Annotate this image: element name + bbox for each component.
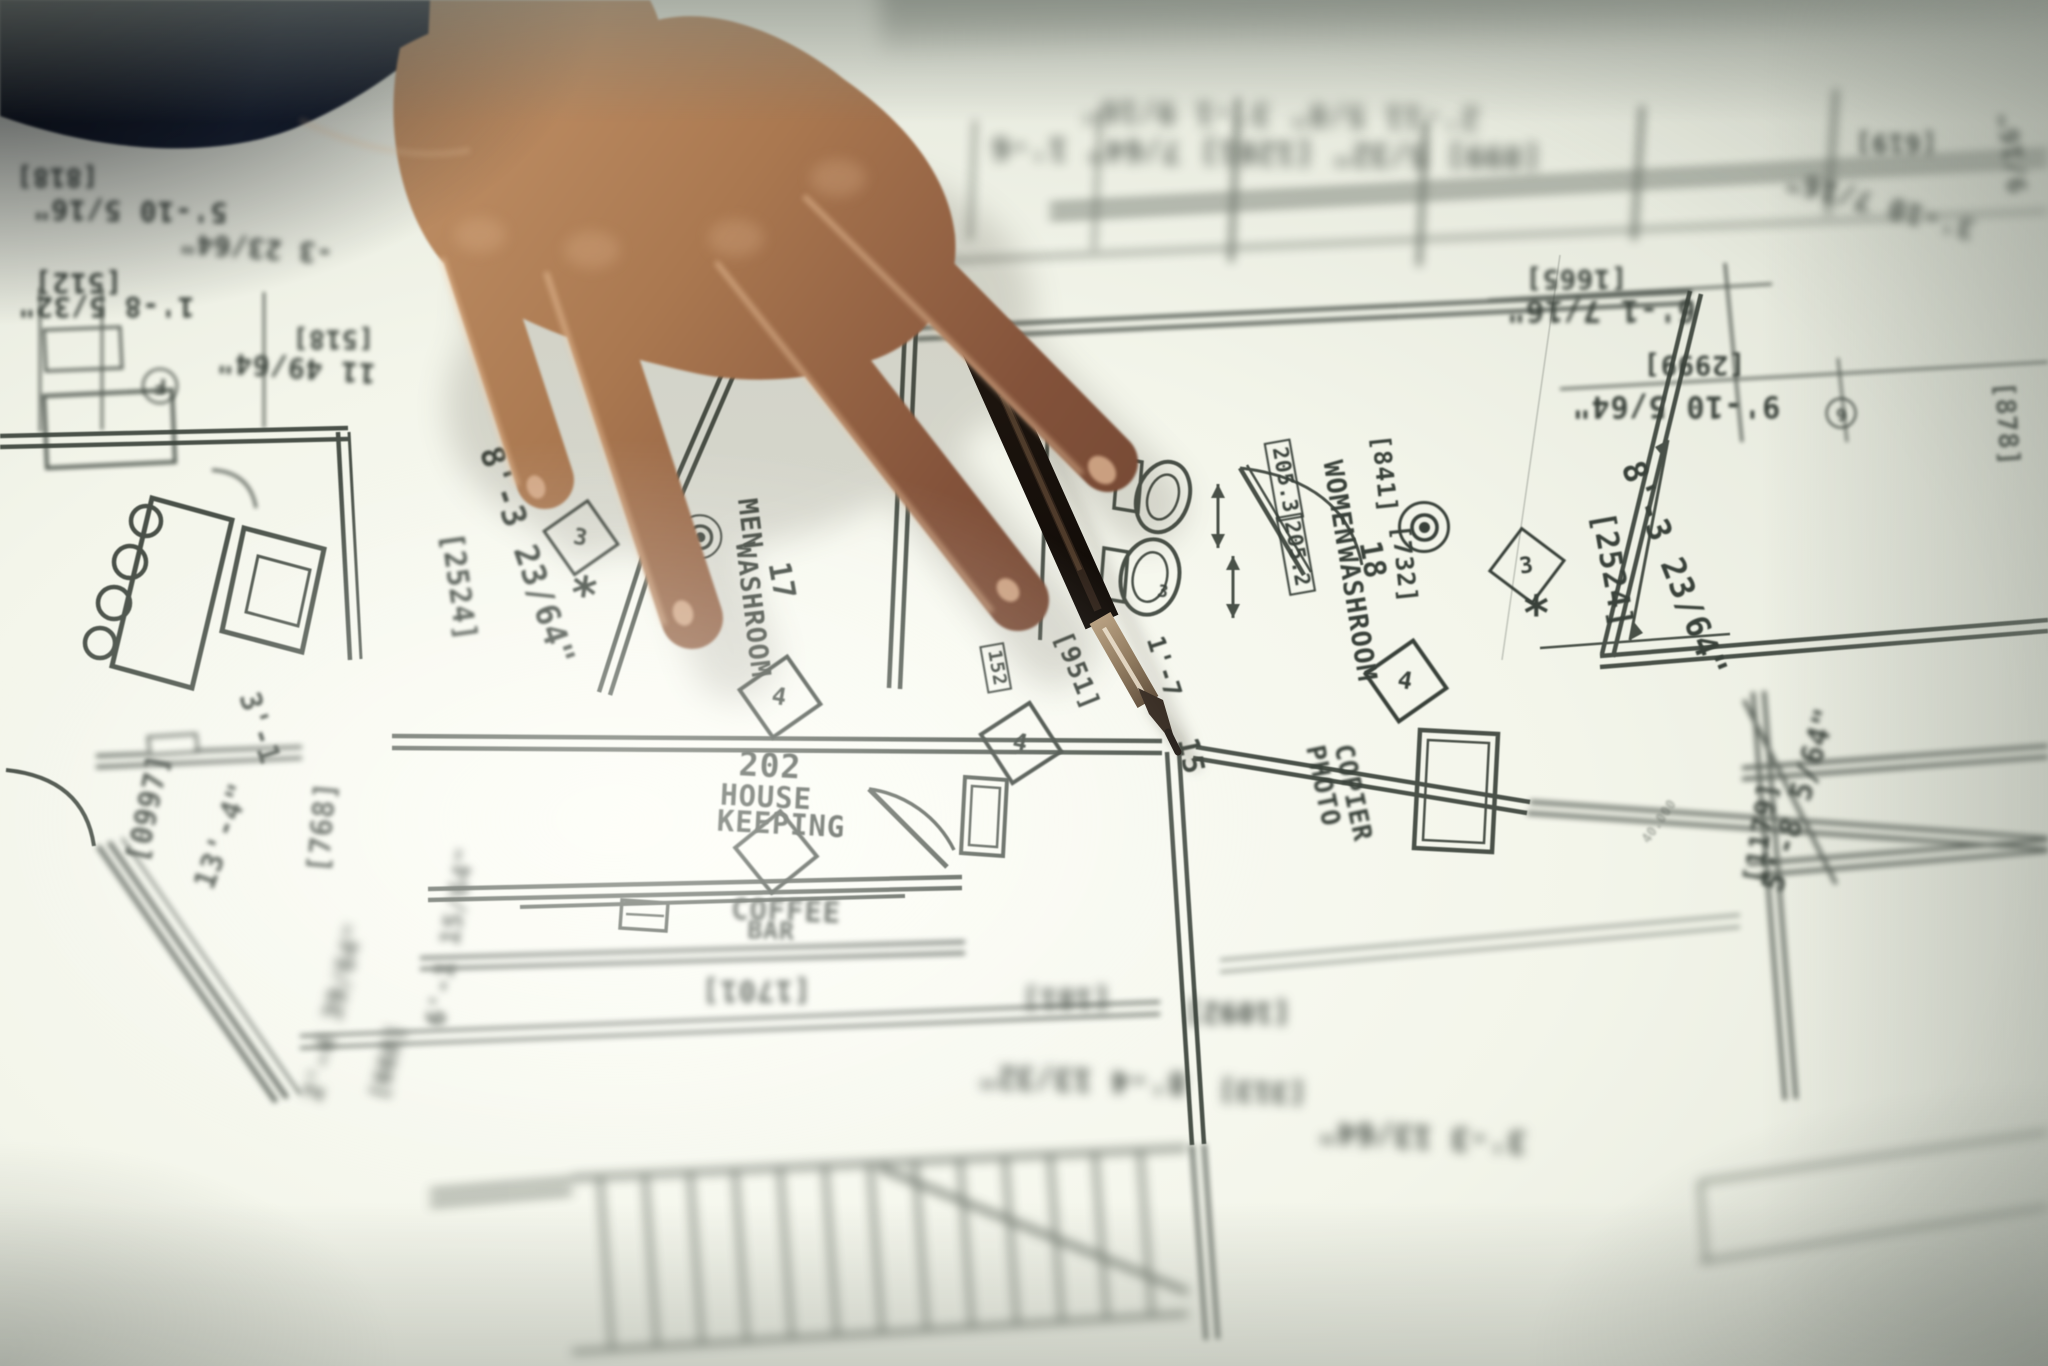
vignette-bottom-left xyxy=(0,0,2048,1366)
photo-blueprint-scene: [818]5'-10 5/16"-3 23/64"[512]1'-8 5/32"… xyxy=(0,0,2048,1366)
